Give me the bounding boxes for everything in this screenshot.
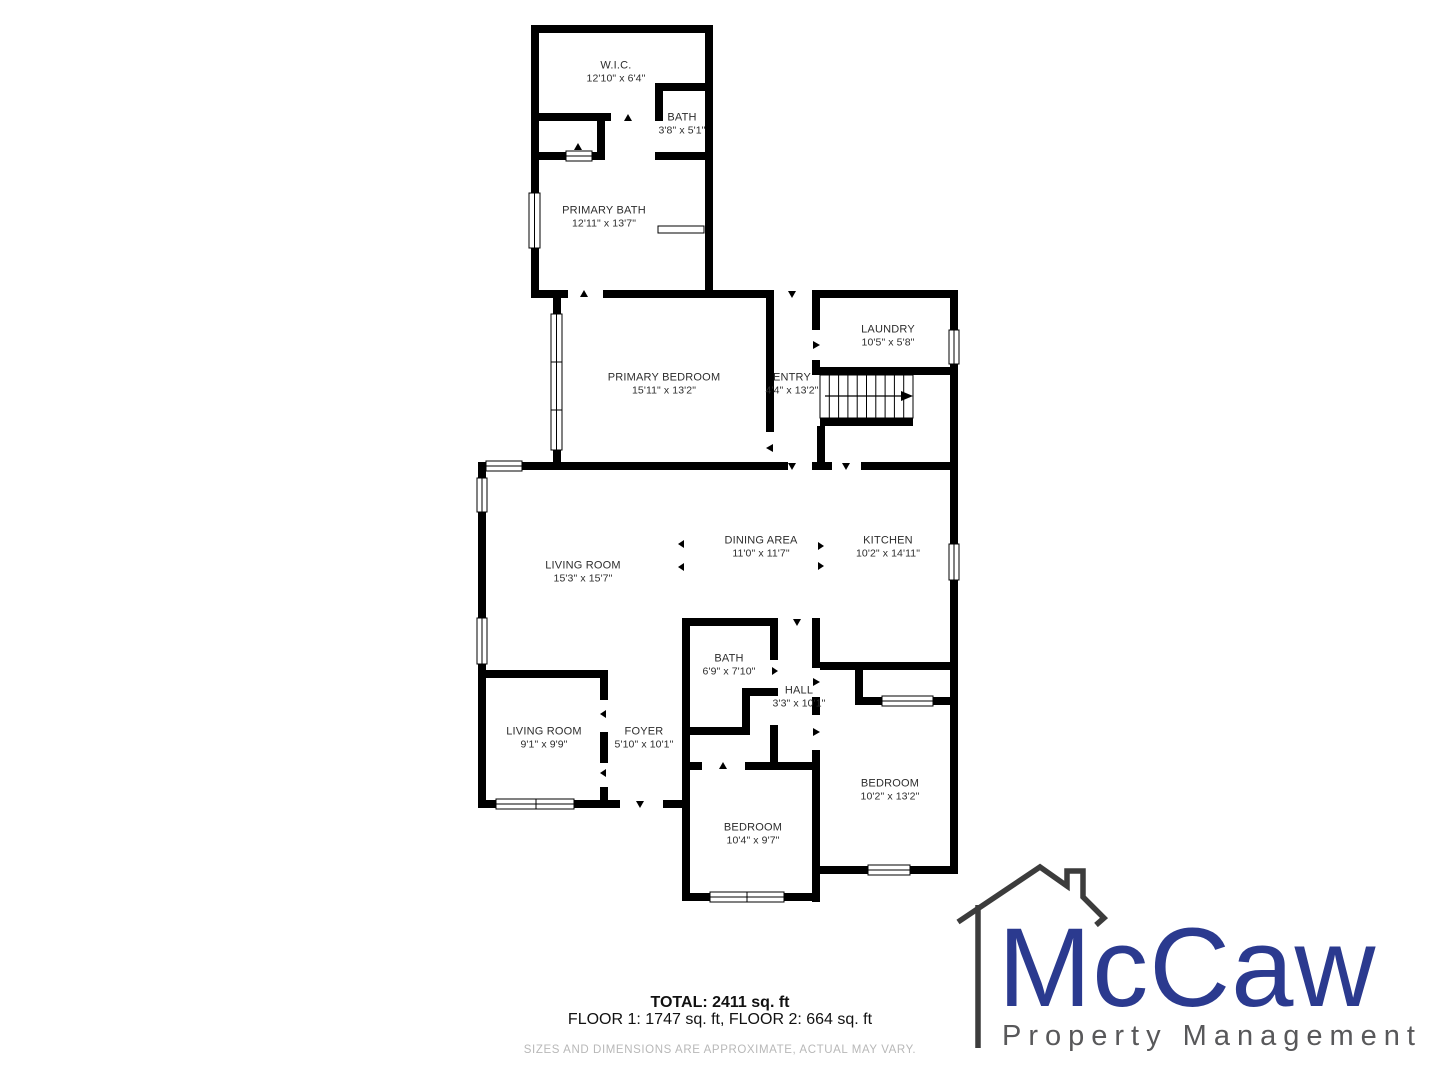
room-dimensions: 9'1" x 9'9" xyxy=(506,738,582,751)
logo-tagline-text: Property Management xyxy=(1002,1022,1422,1051)
room-label-entry: ENTRY4'4" x 13'2" xyxy=(766,372,819,397)
room-label-dining-area: DINING AREA11'0" x 11'7" xyxy=(724,535,797,560)
room-name: KITCHEN xyxy=(856,535,920,548)
room-label-kitchen: KITCHEN10'2" x 14'11" xyxy=(856,535,920,560)
room-label-wic: W.I.C.12'10" x 6'4" xyxy=(587,60,646,85)
room-label-bath: BATH6'9" x 7'10" xyxy=(703,653,756,678)
room-label-bedroom-right: BEDROOM10'2" x 13'2" xyxy=(861,778,920,803)
room-dimensions: 15'11" x 13'2" xyxy=(608,384,721,397)
room-name: PRIMARY BATH xyxy=(562,205,646,218)
company-logo: McCaw Property Management xyxy=(945,855,1425,1065)
room-dimensions: 12'11" x 13'7" xyxy=(562,217,646,230)
room-name: PRIMARY BEDROOM xyxy=(608,372,721,385)
stair-direction-arrow xyxy=(901,391,913,401)
room-name: BATH xyxy=(703,653,756,666)
room-name: FOYER xyxy=(615,726,674,739)
room-label-bath-upper: BATH3'8" x 5'1" xyxy=(658,112,705,137)
room-label-living-room-2: LIVING ROOM9'1" x 9'9" xyxy=(506,726,582,751)
room-dimensions: 11'0" x 11'7" xyxy=(724,547,797,560)
room-name: DINING AREA xyxy=(724,535,797,548)
room-dimensions: 4'4" x 13'2" xyxy=(766,384,819,397)
staircase xyxy=(820,375,913,418)
room-label-living-room: LIVING ROOM15'3" x 15'7" xyxy=(545,560,621,585)
room-name: LIVING ROOM xyxy=(545,560,621,573)
room-label-laundry: LAUNDRY10'5" x 5'8" xyxy=(861,324,915,349)
room-dimensions: 6'9" x 7'10" xyxy=(703,665,756,678)
room-name: BEDROOM xyxy=(724,822,782,835)
room-name: LAUNDRY xyxy=(861,324,915,337)
room-dimensions: 10'2" x 13'2" xyxy=(861,790,920,803)
room-name: BEDROOM xyxy=(861,778,920,791)
room-dimensions: 10'2" x 14'11" xyxy=(856,547,920,560)
walls xyxy=(478,25,958,902)
room-dimensions: 10'4" x 9'7" xyxy=(724,834,782,847)
room-dimensions: 3'3" x 10'1" xyxy=(773,697,826,710)
room-label-foyer: FOYER5'10" x 10'1" xyxy=(615,726,674,751)
floor-plan-page: { "plan": { "wall_color": "#000000", "la… xyxy=(0,0,1440,1080)
room-name: W.I.C. xyxy=(587,60,646,73)
room-dimensions: 10'5" x 5'8" xyxy=(861,336,915,349)
room-dimensions: 3'8" x 5'1" xyxy=(658,124,705,137)
room-name: BATH xyxy=(658,112,705,125)
room-name: HALL xyxy=(773,685,826,698)
room-label-primary-bath: PRIMARY BATH12'11" x 13'7" xyxy=(562,205,646,230)
vanity-counter xyxy=(658,226,704,233)
room-label-primary-bedroom: PRIMARY BEDROOM15'11" x 13'2" xyxy=(608,372,721,397)
room-name: LIVING ROOM xyxy=(506,726,582,739)
room-name: ENTRY xyxy=(766,372,819,385)
room-dimensions: 12'10" x 6'4" xyxy=(587,72,646,85)
room-label-hall: HALL3'3" x 10'1" xyxy=(773,685,826,710)
room-dimensions: 5'10" x 10'1" xyxy=(615,738,674,751)
room-label-bedroom-lower: BEDROOM10'4" x 9'7" xyxy=(724,822,782,847)
room-dimensions: 15'3" x 15'7" xyxy=(545,572,621,585)
logo-brand-text: McCaw xyxy=(998,912,1376,1024)
